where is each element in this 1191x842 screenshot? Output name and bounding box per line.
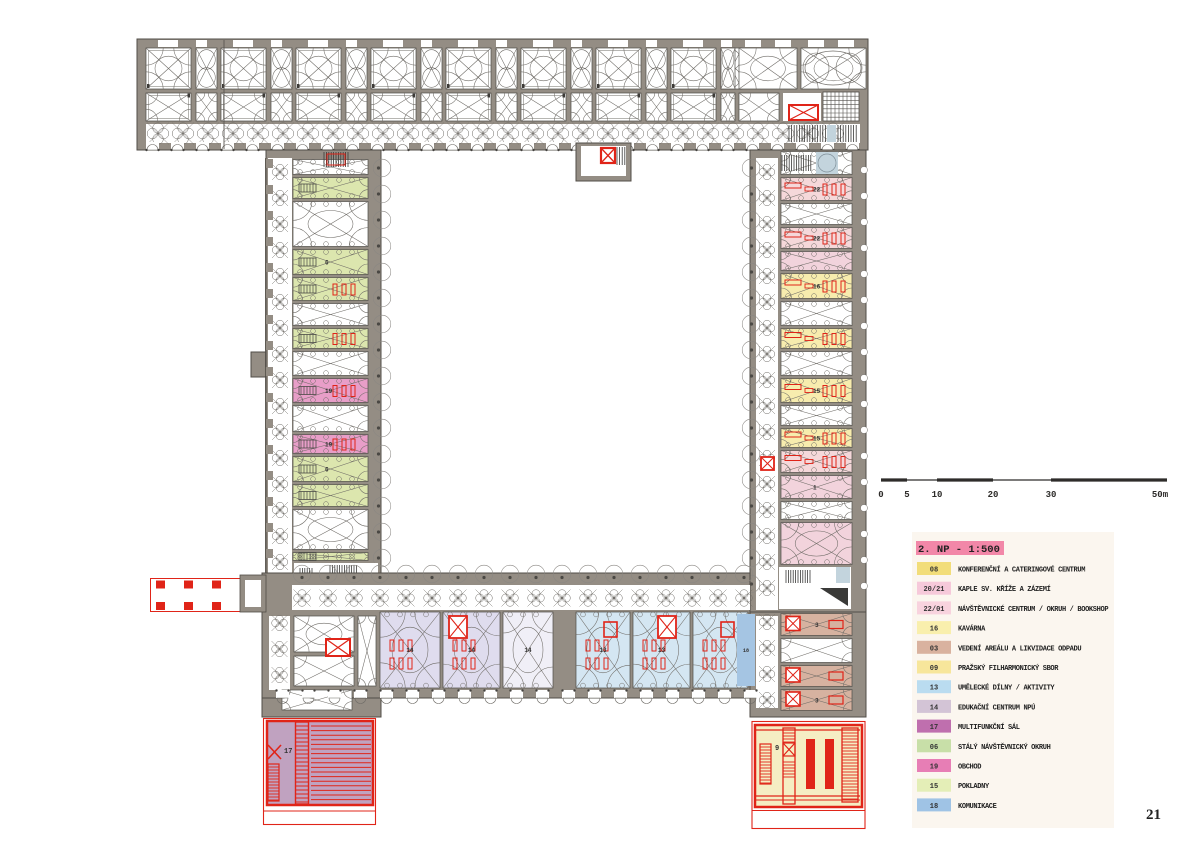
svg-text:POKLADNY: POKLADNY — [958, 783, 990, 791]
svg-text:03: 03 — [930, 645, 938, 653]
svg-text:14: 14 — [930, 704, 938, 712]
svg-text:UMĚLECKÉ DÍLNY / AKTIVITY: UMĚLECKÉ DÍLNY / AKTIVITY — [958, 684, 1055, 693]
svg-text:14: 14 — [524, 647, 532, 654]
svg-text:06: 06 — [930, 744, 938, 752]
svg-text:STÁLÝ NÁVŠTĚVNICKÝ OKRUH: STÁLÝ NÁVŠTĚVNICKÝ OKRUH — [958, 742, 1051, 752]
svg-text:13: 13 — [930, 685, 938, 693]
svg-text:22/01: 22/01 — [923, 606, 944, 614]
svg-text:18: 18 — [743, 648, 749, 654]
svg-text:3: 3 — [815, 622, 819, 629]
svg-text:OBCHOD: OBCHOD — [958, 764, 981, 772]
svg-text:2. NP - 1:500: 2. NP - 1:500 — [918, 544, 1000, 556]
svg-text:20/21: 20/21 — [923, 586, 944, 594]
svg-text:EDUKAČNÍ CENTRUM NPÚ: EDUKAČNÍ CENTRUM NPÚ — [958, 702, 1035, 712]
svg-text:16: 16 — [813, 284, 821, 291]
svg-text:NÁVŠTĚVNICKÉ CENTRUM / OKRUH /: NÁVŠTĚVNICKÉ CENTRUM / OKRUH / BOOKSHOP — [958, 604, 1108, 614]
svg-text:VEDENÍ AREÁLU A LIKVIDACE ODPA: VEDENÍ AREÁLU A LIKVIDACE ODPADU — [958, 644, 1081, 653]
svg-text:KAPLE SV. KŘÍŽE A ZÁZEMÍ: KAPLE SV. KŘÍŽE A ZÁZEMÍ — [958, 584, 1051, 594]
svg-text:22: 22 — [813, 236, 821, 243]
svg-text:30: 30 — [1046, 490, 1057, 500]
svg-text:15: 15 — [813, 388, 821, 395]
svg-text:9: 9 — [775, 745, 779, 753]
svg-text:14: 14 — [406, 647, 414, 654]
svg-text:5: 5 — [904, 490, 909, 500]
svg-text:6: 6 — [325, 260, 329, 267]
svg-text:1: 1 — [813, 485, 817, 492]
svg-text:21: 21 — [1146, 807, 1161, 823]
svg-text:19: 19 — [325, 442, 333, 449]
svg-text:KOMUNIKACE: KOMUNIKACE — [958, 803, 997, 811]
svg-text:17: 17 — [284, 748, 292, 756]
svg-text:17: 17 — [930, 724, 938, 732]
svg-text:13: 13 — [599, 647, 607, 654]
svg-text:19: 19 — [930, 764, 938, 772]
svg-text:KAVÁRNA: KAVÁRNA — [958, 625, 986, 634]
svg-text:50m: 50m — [1152, 490, 1169, 500]
svg-text:13: 13 — [658, 647, 666, 654]
svg-text:PRAŽSKÝ FILHARMONICKÝ SBOR: PRAŽSKÝ FILHARMONICKÝ SBOR — [958, 663, 1059, 673]
svg-text:14: 14 — [468, 647, 476, 654]
svg-text:KONFERENČNÍ A CATERINGOVÉ CENT: KONFERENČNÍ A CATERINGOVÉ CENTRUM — [958, 565, 1085, 575]
svg-text:09: 09 — [930, 665, 938, 673]
svg-text:10: 10 — [932, 490, 943, 500]
svg-text:15: 15 — [930, 783, 938, 791]
svg-text:MULTIFUNKČNÍ SÁL: MULTIFUNKČNÍ SÁL — [958, 722, 1020, 732]
svg-text:22: 22 — [813, 187, 821, 194]
svg-text:20: 20 — [988, 490, 999, 500]
svg-text:16: 16 — [930, 626, 938, 634]
svg-text:6: 6 — [325, 467, 329, 474]
svg-text:3: 3 — [815, 698, 819, 705]
svg-text:08: 08 — [930, 567, 938, 575]
svg-text:19: 19 — [325, 388, 333, 395]
svg-text:0: 0 — [878, 490, 883, 500]
svg-text:18: 18 — [930, 803, 938, 811]
svg-text:15: 15 — [813, 436, 821, 443]
